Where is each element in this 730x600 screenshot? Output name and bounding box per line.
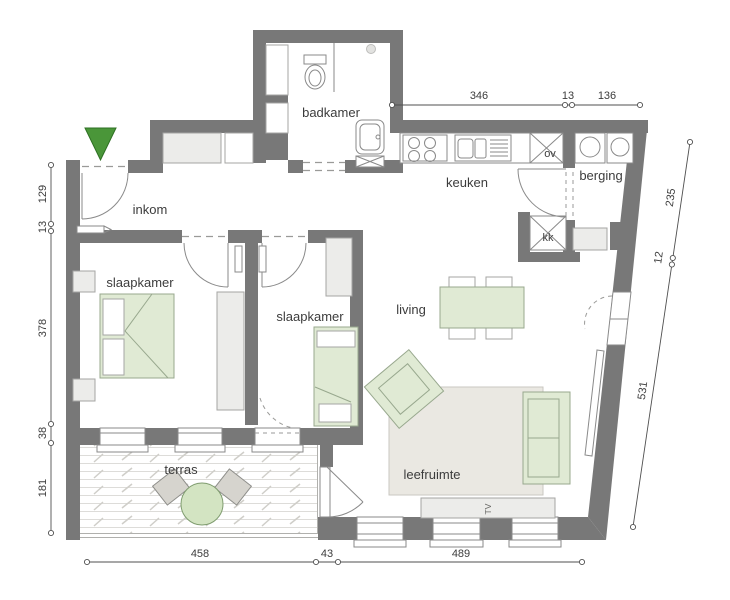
wall-bath-top — [253, 30, 403, 43]
living-window-3 — [509, 517, 561, 547]
terrace-window-2 — [175, 428, 225, 452]
hall-closet — [163, 133, 221, 163]
toilet-bowl — [305, 65, 325, 89]
dim-bottom-489: 489 — [452, 548, 470, 560]
wall-terrace-north-a — [66, 428, 100, 445]
dim-right-531: 531 — [636, 381, 650, 401]
dim-bottom-43: 43 — [321, 548, 333, 560]
dining-table — [440, 287, 524, 328]
label-inkom: inkom — [133, 202, 168, 217]
wall-terrace-door-jamb — [320, 445, 333, 467]
duct-box — [356, 156, 384, 167]
wall-niche-bottom — [266, 133, 288, 160]
dining-chair — [449, 328, 475, 339]
terrace-door-panel — [320, 467, 330, 517]
label-oven: ov — [544, 148, 556, 160]
living-window-2 — [430, 517, 483, 547]
bedroom2-furniture — [314, 238, 358, 426]
bedroom1-furniture — [73, 271, 244, 410]
wall-terrace-north-b — [145, 428, 178, 445]
wall-closet-band — [150, 120, 266, 133]
kitchen-counter — [400, 133, 563, 163]
bedroom2-radiator — [259, 246, 266, 272]
slant-wall-window — [607, 292, 631, 345]
washbasin-tap — [376, 135, 380, 139]
dim-left-378: 378 — [37, 319, 49, 337]
wall-bath-right — [390, 30, 403, 133]
wall-between-bedrooms — [245, 243, 258, 425]
shower-head-icon — [367, 45, 376, 54]
dim-left-13: 13 — [37, 221, 49, 233]
pillow — [317, 331, 355, 347]
wall-bottom-a — [318, 517, 357, 540]
dim-left-38: 38 — [37, 427, 49, 439]
wall-berging-inner — [610, 222, 626, 250]
floorplan-page: inkom badkamer keuken berging slaapkamer… — [0, 0, 730, 600]
dim-bottom-458: 458 — [191, 548, 209, 560]
bath-niche-upper — [266, 45, 288, 95]
wall-bath-bottom-left — [288, 160, 303, 173]
terrace-window-3 — [252, 428, 303, 452]
wall-berging-west-upper — [563, 133, 575, 168]
label-slaapkamer-2: slaapkamer — [276, 309, 344, 324]
bed-foot-box — [319, 404, 351, 422]
wardrobe — [217, 292, 244, 410]
dim-top-136: 136 — [598, 90, 616, 102]
sofa — [523, 392, 570, 484]
wall-left-outer — [66, 160, 80, 540]
dim-right-235: 235 — [664, 188, 678, 208]
terrace-window-1 — [97, 428, 148, 452]
entrance-marker-icon — [85, 128, 116, 160]
wall-entry-top — [128, 160, 152, 173]
label-badkamer: badkamer — [302, 105, 360, 120]
dim-right-12: 12 — [652, 251, 666, 265]
hall-radiator — [77, 226, 104, 233]
label-terras: terras — [164, 462, 198, 477]
floorplan-drawing: inkom badkamer keuken berging slaapkamer… — [0, 0, 730, 600]
bedroom2-window-swing — [260, 398, 302, 429]
toilet-tank — [304, 55, 326, 64]
dining-chair — [449, 277, 475, 288]
nightstand — [73, 379, 95, 401]
label-living: living — [396, 302, 426, 317]
wardrobe — [326, 238, 352, 296]
slant-window-swing — [585, 296, 612, 329]
label-koelkast: kk — [543, 232, 555, 244]
wall-bottom-c — [480, 517, 512, 540]
dim-left-181: 181 — [37, 479, 49, 497]
living-window-1 — [354, 517, 406, 547]
dim-top-13: 13 — [562, 90, 574, 102]
dim-left-129: 129 — [37, 185, 49, 203]
terrace-table — [181, 483, 223, 525]
label-berging: berging — [579, 168, 622, 183]
bedroom1-door-swing — [184, 243, 228, 287]
wall-bath-left — [253, 30, 266, 163]
bath-niche-lower — [266, 103, 288, 133]
nightstand — [73, 271, 95, 292]
hall-niche — [225, 133, 253, 163]
dining-chair — [486, 277, 512, 288]
front-door-swing — [82, 173, 128, 219]
wall-bedrooms-north-b — [228, 230, 262, 243]
wall-niche-divider — [266, 95, 288, 103]
wall-kk-south — [518, 252, 580, 262]
wall-terrace-north-d — [300, 428, 363, 445]
wall-terrace-north-c — [222, 428, 255, 445]
bedroom1-radiator — [235, 246, 242, 272]
dining-chair — [486, 328, 512, 339]
label-slaapkamer-1: slaapkamer — [106, 275, 174, 290]
label-leefruimte: leefruimte — [403, 467, 460, 482]
berging-door-swing — [518, 169, 566, 217]
dim-top-346: 346 — [470, 90, 488, 102]
wall-kitchen-top — [390, 120, 648, 133]
bedroom2-door-swing — [262, 243, 306, 287]
pillow — [103, 299, 124, 335]
berging-shelf — [573, 228, 607, 250]
terrace-door-swing — [327, 502, 363, 517]
wall-bottom-b — [403, 517, 433, 540]
pillow — [103, 339, 124, 375]
label-tv: TV — [483, 503, 493, 514]
label-keuken: keuken — [446, 175, 488, 190]
